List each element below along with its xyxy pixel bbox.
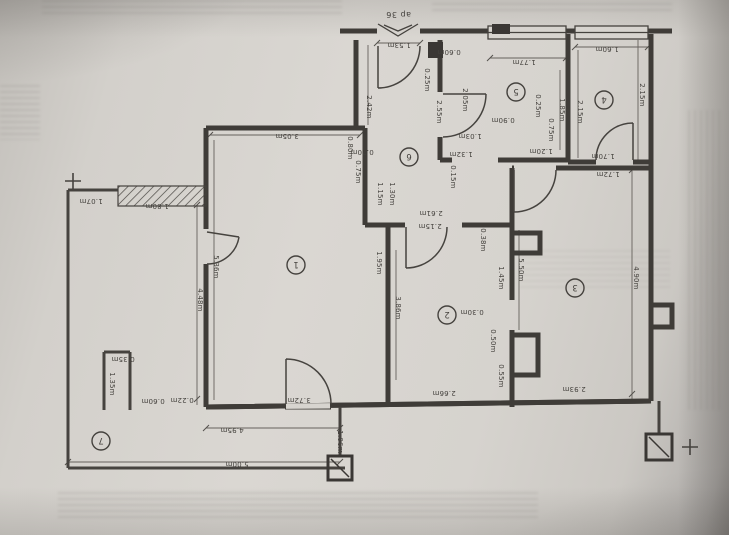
dimension-label: 0.70m [350, 148, 373, 156]
dimension-label: 4.48m [196, 288, 204, 311]
dimension-label: 1.85m [558, 98, 566, 121]
dimension-label: 2.15m [638, 83, 646, 106]
dimension-label: 3.72m [287, 396, 310, 404]
dimension-label: 5.00m [225, 460, 248, 468]
survey-cross-icon [65, 173, 698, 455]
dimension-label: 0.15m [449, 165, 457, 188]
dimension-label: 1.20m [529, 147, 552, 155]
dimension-label: 0.22m [170, 396, 193, 404]
dimension-label: 0.90m [491, 116, 514, 124]
dimension-label: 3.86m [394, 296, 402, 319]
terrace-walls [68, 190, 659, 468]
dimension-label: 1.53m [387, 41, 410, 49]
dimension-label: 0.75m [547, 118, 555, 141]
north-chevron-icon [378, 24, 418, 36]
dimension-label: 1.95m [375, 251, 383, 274]
dimension-label: 0.60m [437, 48, 460, 56]
dimension-label: 2.15m [576, 100, 584, 123]
dimension-label: 1.70m [591, 152, 614, 160]
dimension-label: 2.42m [365, 95, 373, 118]
dimension-label: 0.35m [111, 355, 134, 363]
room-number: 1 [293, 259, 298, 269]
photographed-floor-plan-page: ap 36 1.53m0.25m2.42m2.55m2.05m0.60m1.77… [0, 0, 729, 535]
dimension-label: 0.30m [460, 308, 483, 316]
room-number: 2 [444, 309, 449, 319]
dimension-label: 2.66m [432, 389, 455, 397]
dimension-label: 1.60m [595, 45, 618, 53]
dimension-label: 5.36m [212, 255, 220, 278]
dimension-label: 2.61m [419, 209, 442, 217]
dimension-label: 2.15m [418, 222, 441, 230]
walls [206, 31, 672, 407]
column [328, 434, 672, 480]
dimension-label: 1.80m [145, 202, 168, 210]
dimension-label: 0.55m [497, 364, 505, 387]
dimension-label: 1.07m [79, 197, 102, 205]
floor-plan-drawing: ap 36 1.53m0.25m2.42m2.55m2.05m0.60m1.77… [0, 0, 729, 535]
dimension-label: 2.55m [435, 100, 443, 123]
dimension-label: 2.05m [461, 88, 469, 111]
dimension-label: 0.25m [423, 68, 431, 91]
room-number: 4 [601, 94, 606, 104]
room-number: 5 [513, 86, 518, 96]
dimension-label: 1.06m [336, 430, 344, 453]
dimension-label: 1.30m [388, 182, 396, 205]
dimension-label: 0.25m [534, 94, 542, 117]
room-number: 3 [572, 282, 577, 292]
dimension-label: 0.60m [141, 397, 164, 405]
dimension-label: 5.50m [517, 258, 525, 281]
dimension-label: 4.90m [632, 266, 640, 289]
dimension-label: 3.05m [275, 132, 298, 140]
dimension-label: 1.32m [449, 150, 472, 158]
dimension-label: 1.03m [458, 132, 481, 140]
dimension-label: 1.35m [108, 372, 116, 395]
apartment-label: ap 36 [386, 10, 411, 19]
dimension-label: 1.45m [497, 266, 505, 289]
room-number: 7 [98, 435, 103, 445]
dimension-label: 1.77m [512, 58, 535, 66]
dimension-label: 0.50m [489, 329, 497, 352]
room-number: 6 [406, 151, 411, 161]
dimension-label: 1.15m [376, 182, 384, 205]
dimension-label: 4.95m [220, 426, 243, 434]
dimension-label: 1.72m [596, 170, 619, 178]
dimension-label: 0.38m [479, 228, 487, 251]
dimension-label: 0.75m [354, 160, 362, 183]
dimension-label: 2.93m [562, 385, 585, 393]
